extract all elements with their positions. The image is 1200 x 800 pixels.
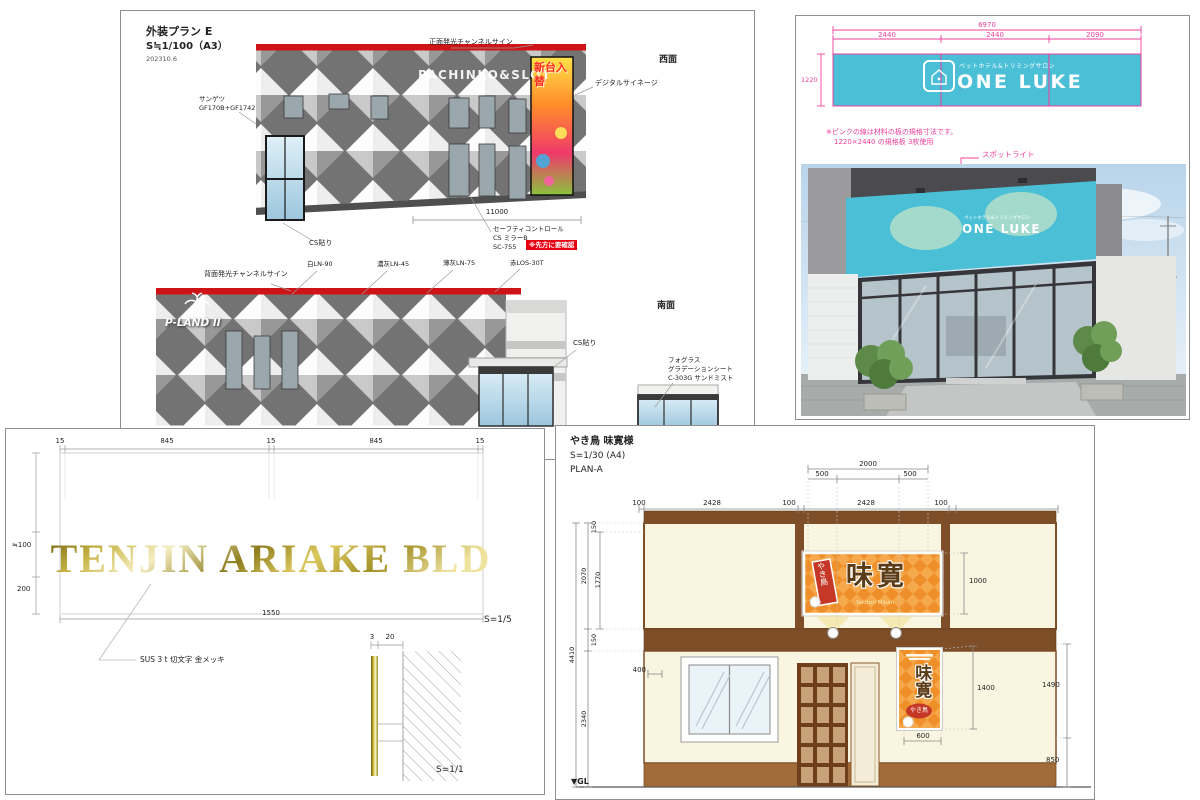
- material-note-1: ※ピンクの線は材料の板の規格寸法です。: [826, 128, 957, 137]
- dim-20: 20: [382, 633, 398, 642]
- ann-fog-3: C-303G サンドミスト: [668, 374, 733, 382]
- dim-2070: 2070: [580, 568, 588, 585]
- poster-text: 新台入替: [534, 61, 572, 89]
- side-entrance-glass: [638, 395, 718, 429]
- sign-face-outline: [60, 453, 483, 614]
- dim-4410: 4410: [568, 647, 576, 664]
- storefront-photo: [801, 164, 1186, 416]
- dim-2000: 2000: [854, 460, 882, 469]
- south-face-label: 南面: [657, 301, 675, 312]
- dim-200h: 200: [17, 585, 30, 594]
- ann-front-channel-sign: 正面発光チャンネルサイン: [429, 38, 513, 47]
- photo-sign-subtitle: ペットホテル&トリミングサロン: [964, 216, 1031, 222]
- dim-100b: 100: [781, 499, 797, 508]
- dim-total-6970: 6970: [967, 21, 1007, 30]
- dim-15b: 15: [264, 437, 278, 446]
- dim-1400: 1400: [977, 684, 995, 693]
- panel-exterior-plan: 外装プラン E S≒1/100（A3） 202310.6 正面発光チャンネルサイ…: [120, 10, 755, 460]
- west-face-label: 西面: [659, 55, 677, 66]
- sign-main-text: ONE LUKE: [957, 71, 1083, 95]
- ann-sangetsu-1: サンゲツ: [199, 95, 225, 103]
- dim-11000: 11000: [477, 208, 517, 217]
- ann-back-channel-sign: 背面発光チャンネルサイン: [204, 270, 288, 279]
- ann-cs-1: CS貼り: [309, 239, 332, 248]
- dim-1550: 1550: [254, 609, 288, 618]
- dim-150b: 150: [590, 634, 598, 646]
- ann-digital-signage: デジタルサイネージ: [595, 79, 658, 88]
- banner-main-kanji: 味寛: [910, 664, 931, 698]
- ann-safety-3: SC-755: [493, 243, 516, 251]
- photo-sign-main-text: ONE LUKE: [962, 222, 1041, 237]
- scale-1-5: S=1/5: [484, 615, 512, 626]
- glass-entrance: [479, 367, 553, 426]
- extension-lines: [60, 453, 483, 499]
- dim-845a: 845: [152, 437, 182, 446]
- side-entrance-fascia: [638, 385, 718, 395]
- dim-2428a: 2428: [700, 499, 724, 508]
- scale-1-1: S=1/1: [436, 765, 464, 776]
- canopy: [469, 358, 567, 367]
- gold-sign-text: TENJIN ARIAKE BLD: [51, 536, 492, 581]
- plan-date: 202310.6: [146, 55, 177, 63]
- dim-3: 3: [366, 633, 378, 642]
- yakitori-elevation-drawing: [556, 426, 1094, 799]
- dim-100c: 100: [933, 499, 949, 508]
- shrub-left: [855, 340, 913, 410]
- material-note-2: 1220×2440 の規格板 3枚使用: [834, 138, 933, 147]
- signage-plan-board: 外装プラン E S≒1/100（A3） 202310.6 正面発光チャンネルサイ…: [0, 0, 1200, 800]
- plan-name: PLAN-A: [570, 465, 603, 476]
- ann-cs-2: CS貼り: [573, 339, 596, 348]
- dim-15c: 15: [473, 437, 487, 446]
- panel-tenjin-ariake: TENJIN ARIAKE BLD: [5, 428, 545, 795]
- side-detail: [371, 641, 461, 781]
- dim-150a: 150: [590, 521, 598, 533]
- dim-850: 850: [1046, 756, 1059, 765]
- dim-1770: 1770: [594, 572, 602, 589]
- ann-spotlight: スポットライト: [982, 150, 1035, 159]
- facade-sign-text: PACHINKO&SLOT: [418, 68, 552, 83]
- dim-500b: 500: [898, 470, 922, 479]
- ann-fog-1: フォグラス: [668, 356, 700, 364]
- banner-chicken: [903, 717, 913, 727]
- ann-red-los30t: 赤LOS-30T: [510, 259, 544, 267]
- plan-title: やき鳥 味寛様: [570, 436, 633, 449]
- dim-seg-2440b: 2440: [975, 31, 1015, 40]
- dim-15a: 15: [53, 437, 67, 446]
- dim-100a: 100: [631, 499, 647, 508]
- dim-600: 600: [912, 732, 934, 741]
- ann-safety-2: CS ミラーB: [493, 234, 528, 242]
- top-dimension-line: [60, 445, 483, 453]
- plan-title: 外装プラン E: [146, 25, 212, 39]
- plan-scale: S≒1/100（A3）: [146, 41, 228, 54]
- dim-2340: 2340: [580, 711, 588, 728]
- south-elevation: [156, 288, 718, 429]
- banner-ribbon-text: やき鳥: [910, 707, 928, 715]
- material-leader: [99, 584, 151, 660]
- left-dimension-line: [32, 453, 40, 614]
- dim-2428b: 2428: [854, 499, 878, 508]
- sign-subtitle: ペットホテル&トリミングサロン: [959, 63, 1055, 71]
- ann-fog-2: グラデーションシート: [668, 365, 733, 373]
- dim-seg-2090: 2090: [1075, 31, 1115, 40]
- panel-one-luke-sign: 6970 2440 2440 2090 1220 ペットホテル&トリミングサロン…: [795, 15, 1190, 420]
- ann-sangetsu-2: GF170B+GF1742: [199, 104, 255, 112]
- sign-caption: Yakitori Mikan: [856, 600, 894, 607]
- confirm-badge: ※先方に要確認: [526, 240, 577, 250]
- ann-white-ln90: 白LN-90: [307, 260, 333, 268]
- dim-height-1220: 1220: [801, 76, 818, 84]
- ann-material-sus: SUS 3 t 切文字 金メッキ: [140, 655, 225, 664]
- chicken-mascot: [810, 597, 820, 607]
- ann-safety-1: セーフティコントロール: [493, 225, 564, 233]
- pland-logo-text: P-LAND II: [165, 317, 221, 330]
- dim-100h: ≒100: [12, 541, 31, 550]
- gl-marker: ▼GL: [571, 777, 589, 787]
- ann-darkgrey-ln45: 濃灰LN-45: [377, 260, 409, 268]
- dim-11000-line: [413, 216, 581, 224]
- dim-400: 400: [628, 666, 646, 675]
- spotlight-lamp: [828, 628, 839, 639]
- spotlight-fixture: [916, 188, 925, 193]
- dim-1000: 1000: [969, 577, 987, 586]
- dim-845b: 845: [361, 437, 391, 446]
- storefront-elevation: [576, 511, 1091, 787]
- dim-seg-2440a: 2440: [867, 31, 907, 40]
- ann-lightgrey-ln75: 薄灰LN-75: [443, 259, 475, 267]
- panel-yakitori-plan: やき鳥 味寛様 S=1/30 (A4) PLAN-A 2000 500 500 …: [555, 425, 1095, 800]
- dim-1490: 1490: [1042, 681, 1060, 690]
- plan-scale: S=1/30 (A4): [570, 451, 625, 462]
- sign-main-kanji: 味寛: [846, 560, 908, 594]
- spotlight-fixture: [1018, 178, 1027, 183]
- spotlight-lamp: [891, 628, 902, 639]
- dim-500a: 500: [810, 470, 834, 479]
